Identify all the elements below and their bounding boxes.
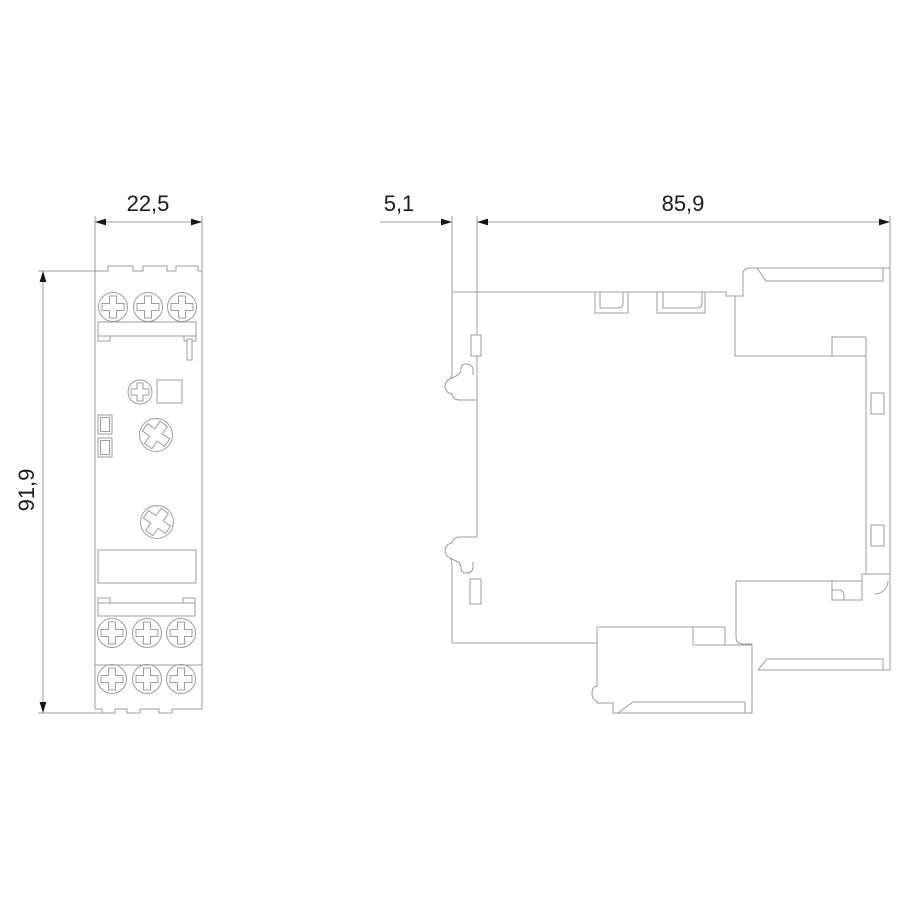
upper-latch [445, 364, 477, 400]
dimension-side-body-depth: 85,9 [477, 191, 890, 225]
label-field [98, 550, 196, 583]
dimension-front-height: 91,9 [14, 271, 102, 713]
side-view: 5,1 85,9 [380, 191, 890, 713]
strip-tab [98, 598, 110, 603]
terminal-screw [98, 665, 127, 694]
rear-lug [871, 525, 884, 546]
dimension-lines [95, 216, 202, 271]
arrow-left-icon [95, 219, 106, 226]
top-vents [595, 292, 705, 313]
lower-terminal-screws [95, 619, 202, 694]
led-windows [98, 415, 112, 457]
side-flange-depth-dimension-label: 5,1 [384, 191, 415, 216]
rear-lug [871, 393, 884, 414]
lower-terminal-strip [98, 598, 195, 616]
latch-outline [445, 368, 477, 400]
terminal-screw [133, 619, 162, 648]
front-body-outline [95, 266, 202, 713]
terminal-screw [167, 619, 196, 648]
strip [98, 322, 196, 336]
arrow-down-icon [40, 702, 47, 713]
bottom-block [452, 627, 752, 713]
rotary-dial [138, 503, 176, 541]
strip [98, 603, 195, 616]
display-window [157, 380, 182, 403]
led-window-inner [101, 418, 110, 432]
flange-slot [471, 335, 481, 356]
terminal-screw [134, 293, 163, 322]
dimension-lines [38, 271, 102, 713]
dimension-front-width: 22,5 [95, 191, 202, 271]
terminal-screw [167, 665, 196, 694]
arrow-up-icon [40, 271, 47, 282]
upper-terminal-screws [99, 293, 197, 322]
strip-tab [183, 598, 195, 603]
rear-step-detail [736, 574, 890, 600]
front-view: 22,5 91,9 [14, 191, 202, 713]
arrow-right-icon [879, 219, 890, 226]
strip-tab [98, 336, 110, 341]
led-window-inner [101, 441, 110, 455]
terminal-screw [99, 293, 128, 322]
arrow-right-icon [441, 219, 452, 226]
terminal-screw [168, 293, 197, 322]
terminal-screw [133, 665, 162, 694]
top-edge [452, 292, 735, 296]
adjust-screw [128, 380, 152, 404]
front-height-dimension-label: 91,9 [14, 469, 39, 512]
upper-block-outline [735, 268, 890, 296]
terminal-screw [98, 619, 127, 648]
upper-block-inner-strip [757, 268, 883, 281]
arrow-right-icon [191, 219, 202, 226]
latch-hook [450, 364, 473, 379]
flange-slot [470, 579, 481, 604]
side-body-depth-dimension-label: 85,9 [662, 191, 705, 216]
lower-rear-block [736, 581, 890, 670]
marker-slot [187, 339, 192, 360]
rotary-dial [137, 416, 175, 454]
dimension-drawing-canvas: 22,5 91,9 [0, 0, 900, 900]
dimension-side-flange-depth: 5,1 [380, 191, 452, 225]
upper-block-underside [735, 296, 866, 574]
latch-hook [450, 558, 473, 573]
arrow-left-icon [477, 219, 488, 226]
front-width-dimension-label: 22,5 [127, 191, 170, 216]
upper-terminal-strip [98, 322, 196, 341]
dimension-drawing: 22,5 91,9 [0, 0, 900, 900]
